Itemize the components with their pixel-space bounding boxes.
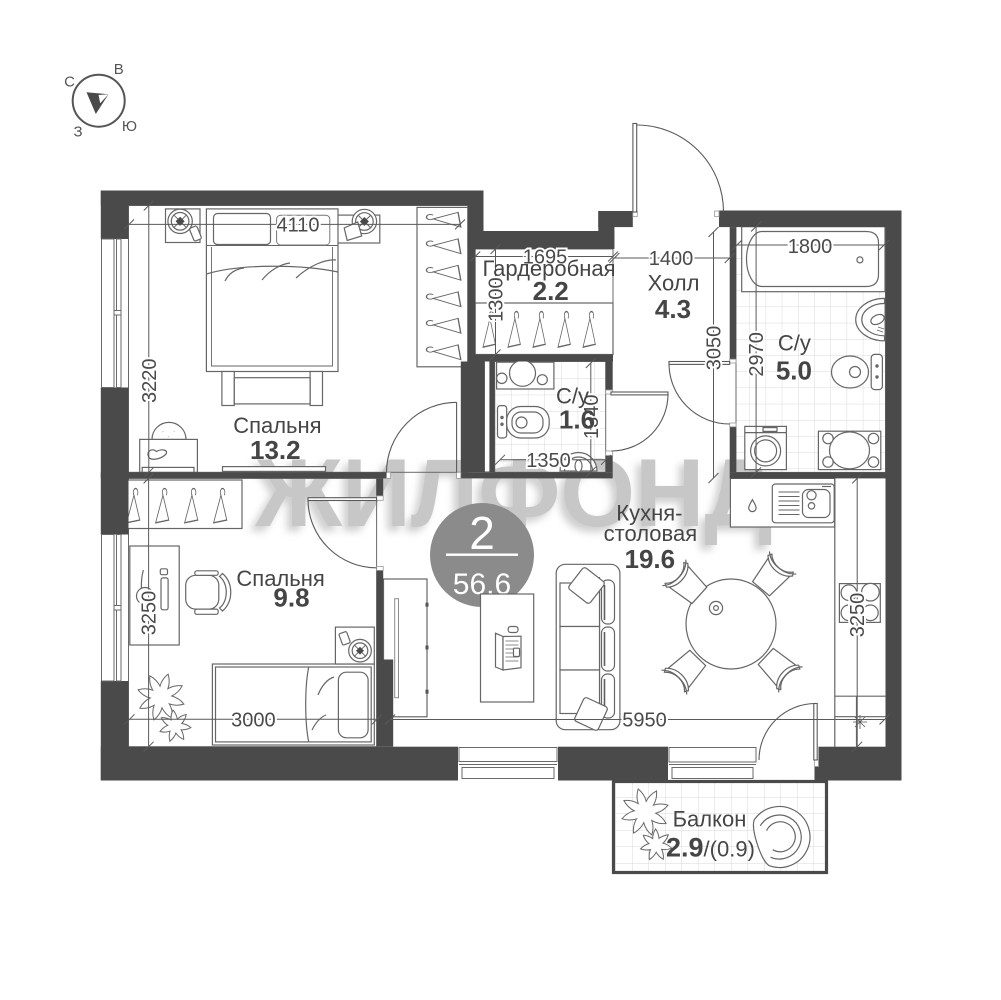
svg-text:2970: 2970 [746, 332, 768, 377]
svg-text:3220: 3220 [139, 359, 161, 404]
svg-text:3050: 3050 [704, 326, 726, 371]
svg-text:9.8: 9.8 [273, 583, 309, 613]
svg-text:3250: 3250 [139, 591, 161, 636]
svg-text:5.0: 5.0 [776, 355, 812, 385]
svg-text:4110: 4110 [276, 215, 319, 237]
svg-text:1350: 1350 [526, 450, 571, 472]
svg-text:1.6: 1.6 [559, 405, 595, 435]
svg-text:1800: 1800 [788, 236, 833, 258]
svg-text:2.2: 2.2 [533, 276, 569, 306]
svg-text:3250: 3250 [847, 593, 869, 638]
svg-text:столовая: столовая [604, 521, 698, 546]
svg-text:Балкон: Балкон [673, 806, 747, 831]
svg-text:С: С [64, 74, 75, 91]
svg-text:1400: 1400 [649, 248, 694, 270]
svg-text:З: З [73, 124, 82, 141]
svg-text:19.6: 19.6 [624, 544, 675, 574]
svg-text:2: 2 [469, 507, 495, 559]
svg-text:В: В [114, 61, 124, 78]
svg-text:4.3: 4.3 [655, 294, 691, 324]
svg-text:1300: 1300 [486, 277, 508, 322]
svg-text:С/у: С/у [778, 330, 811, 355]
svg-text:Ю: Ю [122, 118, 137, 135]
svg-text:2.9/(0.9): 2.9/(0.9) [666, 833, 755, 863]
svg-text:13.2: 13.2 [250, 435, 301, 465]
svg-text:Холл: Холл [648, 270, 700, 295]
svg-text:5950: 5950 [622, 710, 667, 732]
svg-text:3000: 3000 [231, 709, 276, 731]
